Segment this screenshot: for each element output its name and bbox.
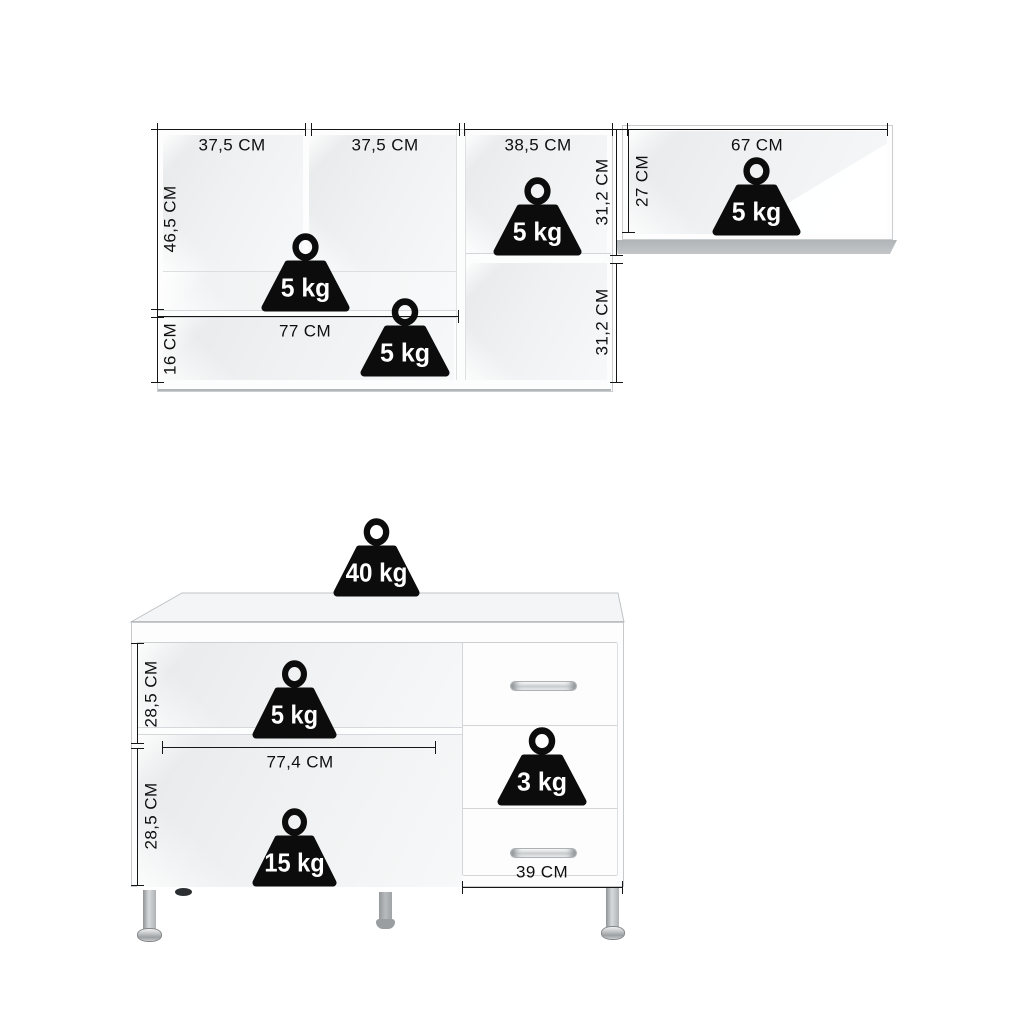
dim-label-shelf-height: 27 CM xyxy=(634,155,651,207)
kettlebell-weight-icon: 5 kg xyxy=(252,659,337,740)
base-cabinet-foot-right xyxy=(601,926,625,940)
drawer-column-left-edge xyxy=(462,643,463,875)
dim-label-wall-height-upper: 46,5 CM xyxy=(162,185,179,252)
base-cabinet-leg-right xyxy=(606,887,619,927)
dim-label-wall-shelf-width: 77 CM xyxy=(279,323,331,340)
wall-cabinet-bottom-panel xyxy=(158,380,611,391)
drawer-handle-bottom xyxy=(510,848,577,858)
wall-cabinet-right-compartment-bottom xyxy=(466,263,607,380)
dim-line-wall-height-lower xyxy=(157,317,158,383)
base-cabinet-foot-middle xyxy=(376,919,395,929)
product-dimension-diagram: 37,5 CM 37,5 CM 38,5 CM 46,5 CM 16 CM 77… xyxy=(0,0,1024,1024)
dim-line-wall-right-top xyxy=(616,129,617,256)
dim-line-wall-width-right xyxy=(464,129,613,130)
weight-label: 15 kg xyxy=(264,849,324,877)
dim-line-shelf-height xyxy=(628,129,629,233)
dim-label-shelf-width: 67 CM xyxy=(731,137,783,154)
dim-line-base-height-lower xyxy=(137,748,138,886)
dim-label-wall-width-left: 37,5 CM xyxy=(198,137,265,154)
weight-ring xyxy=(296,237,316,258)
weight-badge: 5 kg xyxy=(252,659,337,740)
base-cabinet-rear-foot xyxy=(175,888,192,896)
weight-badge: 5 kg xyxy=(360,297,450,378)
weight-ring xyxy=(532,731,552,752)
weight-badge: 5 kg xyxy=(712,156,801,237)
weight-badge: 40 kg xyxy=(333,517,420,598)
weight-badge: 5 kg xyxy=(493,176,582,257)
base-cabinet-leg-middle xyxy=(379,892,392,921)
dim-label-wall-width-middle: 37,5 CM xyxy=(351,137,418,154)
dim-label-base-drawer-width: 39 CM xyxy=(516,864,568,881)
dim-line-base-height-upper xyxy=(137,643,138,744)
dim-label-wall-width-right: 38,5 CM xyxy=(504,137,571,154)
weight-label: 40 kg xyxy=(346,559,408,588)
weight-ring xyxy=(747,161,767,182)
dim-line-wall-width-left xyxy=(157,129,306,130)
drawer-separator-2 xyxy=(463,808,617,809)
weight-ring xyxy=(528,181,548,202)
dim-label-wall-right-bottom: 31,2 CM xyxy=(594,288,611,355)
wall-cabinet-vertical-divider xyxy=(456,130,466,380)
weight-label: 5 kg xyxy=(732,198,781,227)
dim-line-base-inner-width xyxy=(162,747,436,748)
wall-shelf-underside xyxy=(616,240,897,254)
dim-label-base-height-upper: 28,5 CM xyxy=(143,660,160,727)
dim-label-wall-height-lower: 16 CM xyxy=(162,323,179,375)
kettlebell-weight-icon: 5 kg xyxy=(261,232,350,313)
dim-label-base-height-lower: 28,5 CM xyxy=(143,782,160,849)
dim-line-base-drawer-width xyxy=(462,887,623,888)
weight-badge: 3 kg xyxy=(497,726,587,807)
dim-label-wall-right-top: 31,2 CM xyxy=(594,158,611,225)
kettlebell-weight-icon: 5 kg xyxy=(493,176,582,257)
dim-line-shelf-width xyxy=(627,129,888,130)
weight-label: 5 kg xyxy=(281,274,330,303)
kettlebell-weight-icon: 5 kg xyxy=(360,297,450,378)
base-cabinet-foot-left xyxy=(137,928,162,942)
weight-label: 5 kg xyxy=(271,701,318,729)
dim-line-wall-height-upper xyxy=(157,129,158,310)
drawer-column-right-edge xyxy=(617,643,618,875)
weight-ring xyxy=(367,522,386,543)
weight-label: 5 kg xyxy=(380,339,430,368)
weight-label: 3 kg xyxy=(517,768,567,797)
weight-ring xyxy=(285,812,304,833)
weight-ring xyxy=(395,302,415,323)
dim-line-wall-width-middle xyxy=(311,129,460,130)
dim-label-base-inner-width: 77,4 CM xyxy=(266,754,333,771)
weight-badge: 15 kg xyxy=(252,807,337,888)
kettlebell-weight-icon: 40 kg xyxy=(333,517,420,598)
drawer-handle-top xyxy=(510,681,577,691)
weight-ring xyxy=(285,664,304,685)
kettlebell-weight-icon: 5 kg xyxy=(712,156,801,237)
weight-badge: 5 kg xyxy=(261,232,350,313)
base-cabinet-leg-left xyxy=(143,890,156,930)
kettlebell-weight-icon: 3 kg xyxy=(497,726,587,807)
dim-line-wall-right-bottom xyxy=(616,263,617,383)
weight-label: 5 kg xyxy=(513,218,562,247)
kettlebell-weight-icon: 15 kg xyxy=(252,807,337,888)
